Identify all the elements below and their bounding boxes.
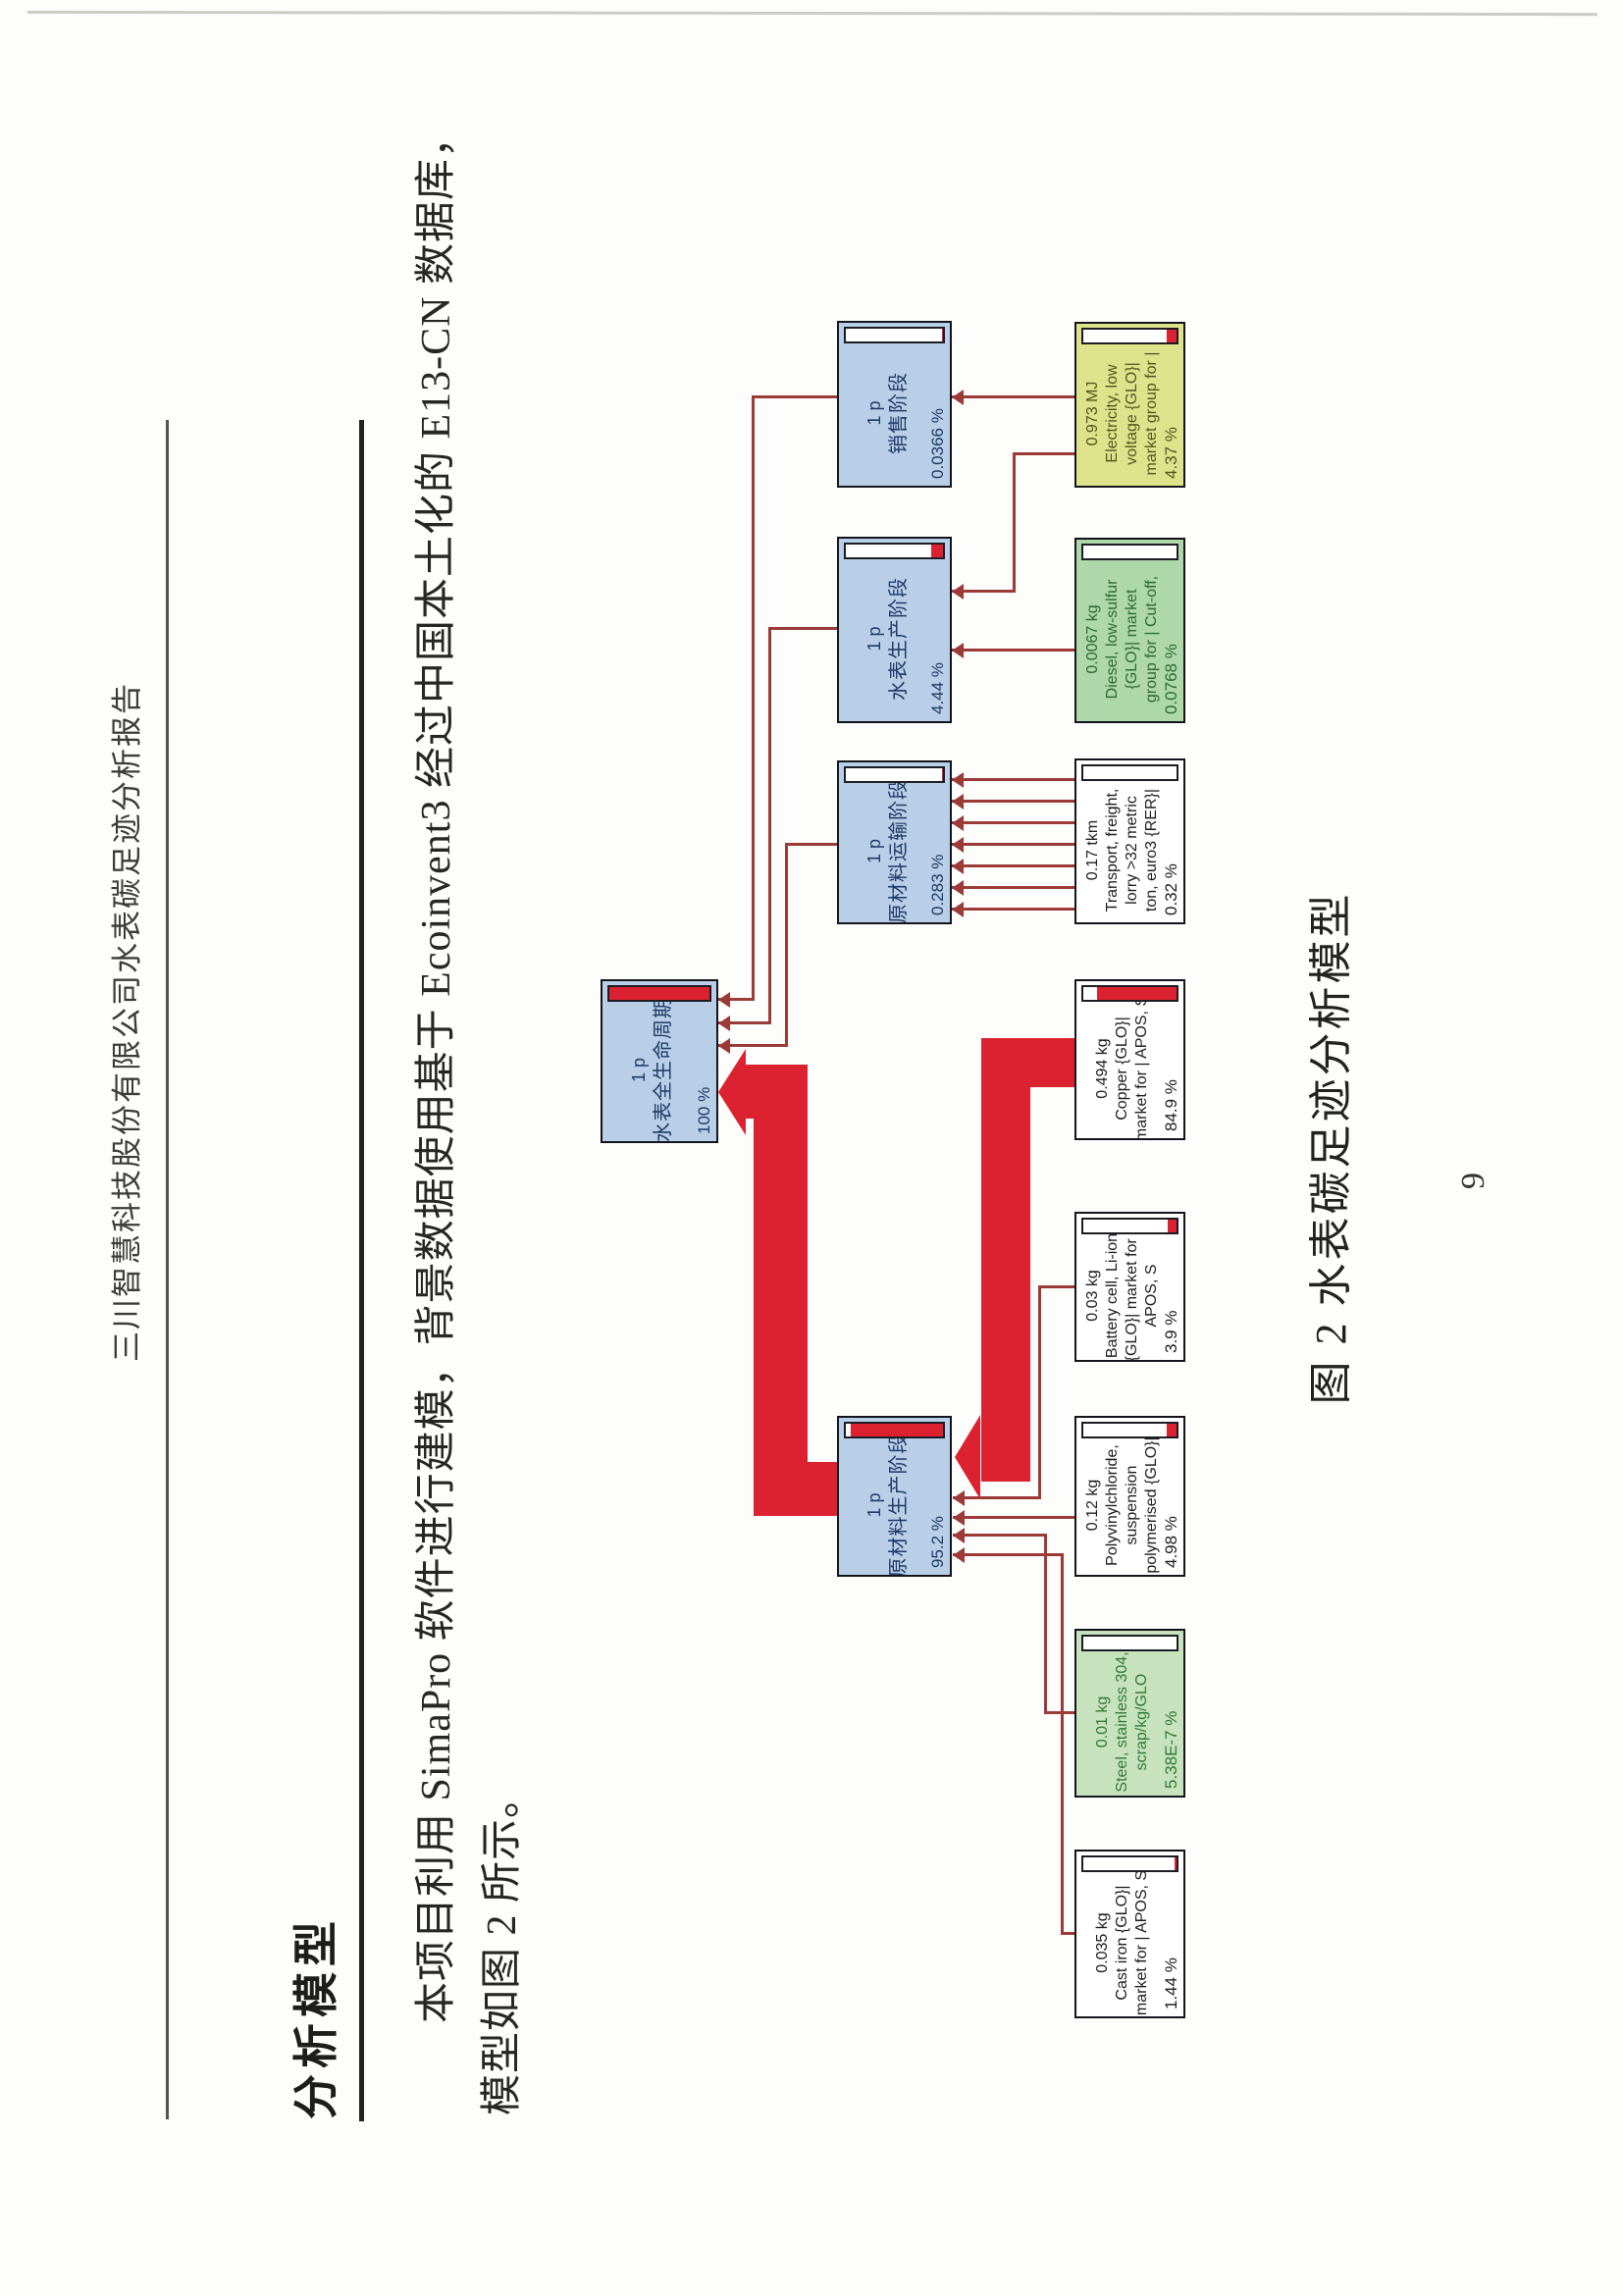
flow-arrowhead-icon: [718, 1016, 730, 1031]
flow-connector-line: [953, 1553, 1063, 1556]
node-percentage: 4.37 %: [1162, 427, 1181, 479]
node-percentage: 0.283 %: [928, 855, 948, 915]
flow-connector-line: [952, 649, 1074, 652]
node-name-line: Electricity, low: [1103, 364, 1123, 462]
contribution-indicator-bar: [1081, 544, 1178, 560]
node-amount: 1 p: [863, 400, 886, 425]
process-node-cast-iron: 0.035 kgCast iron {GLO}|market for | APO…: [1074, 1850, 1185, 2018]
node-amount: 0.17 tkm: [1083, 820, 1103, 880]
flow-connector-line: [952, 843, 1074, 846]
process-node-life-cycle: 1 p水表全生命周期100 %: [601, 979, 718, 1143]
flow-arrowhead-icon: [952, 794, 964, 809]
node-amount: 0.0067 kg: [1083, 604, 1103, 673]
node-percentage: 100 %: [695, 1087, 714, 1134]
contribution-indicator-fill: [1167, 330, 1177, 342]
flow-connector-line: [952, 886, 1074, 889]
node-percentage: 0.0366 %: [928, 408, 948, 479]
process-node-battery: 0.03 kgBattery cell, Li-ion{GLO}| market…: [1074, 1212, 1185, 1362]
flow-arrowhead-icon: [953, 1510, 965, 1526]
node-name-line: Diesel, low-sulfur: [1103, 580, 1123, 700]
flow-arrowhead-icon: [952, 880, 964, 896]
contribution-indicator-fill: [942, 768, 943, 781]
contribution-indicator-bar: [844, 543, 945, 559]
page-number: 9: [1455, 1173, 1492, 1189]
paragraph-line-1: 本项目利用 SimaPro 软件进行建模，背景数据使用基于 Ecoinvent3…: [402, 116, 462, 2023]
paragraph-line-2: 模型如图 2 所示。: [468, 1776, 528, 2115]
flow-connector-line: [1013, 452, 1016, 593]
flow-connector-line: [953, 1534, 1046, 1537]
node-percentage: 1.44 %: [1162, 1957, 1181, 2009]
contribution-indicator-fill: [1175, 1857, 1177, 1870]
node-name-line: lorry >32 metric: [1123, 796, 1142, 905]
flow-arrowhead-icon: [952, 643, 964, 658]
flow-connector-line: [768, 627, 837, 630]
node-percentage: 95.2 %: [928, 1516, 948, 1568]
flow-arrowhead-icon: [953, 1528, 965, 1543]
process-node-sales: 1 p销售阶段0.0366 %: [837, 321, 952, 488]
node-name-line: Cast iron {GLO}|: [1113, 1885, 1132, 2000]
page-header: 三川智慧科技股份有限公司水表碳足迹分析报告: [102, 682, 146, 1362]
flow-connector-line: [952, 395, 1074, 398]
flow-connector-line: [785, 843, 837, 846]
node-name-line: polymerised {GLO}|: [1142, 1436, 1162, 1573]
flow-band: [754, 1065, 808, 1516]
flow-connector-line: [1044, 1534, 1047, 1714]
flow-arrowhead-icon: [952, 859, 964, 874]
process-node-transport: 0.17 tkmTransport, freight,lorry >32 met…: [1074, 758, 1185, 924]
flow-connector-line: [1038, 1285, 1074, 1288]
node-amount: 0.03 kg: [1083, 1270, 1103, 1321]
contribution-indicator-bar: [1081, 764, 1178, 781]
contribution-indicator-fill: [942, 329, 943, 341]
flow-connector-line: [1013, 452, 1074, 455]
flow-arrowhead-icon: [952, 902, 964, 917]
node-name-line: suspension: [1123, 1466, 1142, 1545]
node-percentage: 3.9 %: [1162, 1311, 1181, 1353]
flow-connector-line: [752, 395, 755, 1001]
flow-connector-line: [952, 821, 1074, 824]
flow-arrowhead-icon: [952, 584, 964, 600]
node-name-line: {GLO}| market for |: [1123, 1230, 1142, 1362]
node-name-line: Polyvinylchloride,: [1103, 1444, 1123, 1566]
node-name-line: market group for |: [1142, 352, 1162, 476]
node-percentage: 84.9 %: [1162, 1079, 1181, 1131]
process-node-steel: 0.01 kgSteel, stainless 304,scrap/kg/GLO…: [1074, 1629, 1185, 1798]
node-amount: 1 p: [863, 839, 886, 863]
flow-connector-line: [952, 864, 1074, 867]
node-amount: 0.035 kg: [1093, 1912, 1113, 1972]
header-rule: [166, 420, 169, 2119]
node-name-line: Steel, stainless 304,: [1113, 1651, 1132, 1792]
node-name-line: voltage {GLO}|: [1123, 362, 1142, 465]
flow-arrowhead-icon: [718, 992, 730, 1008]
process-node-material-transport: 1 p原材料运输阶段0.283 %: [837, 760, 952, 924]
node-name-line: market for | APOS, S: [1132, 996, 1152, 1140]
process-node-pvc: 0.12 kgPolyvinylchloride,suspensionpolym…: [1074, 1416, 1185, 1577]
flow-connector-line: [768, 627, 771, 1024]
flow-band: [1022, 1038, 1076, 1087]
contribution-indicator-fill: [1097, 987, 1177, 1000]
section-title: 分析模型: [281, 1915, 345, 2119]
contribution-indicator-fill: [851, 1424, 943, 1436]
flow-band: [803, 1462, 839, 1516]
rotated-page-content: 三川智慧科技股份有限公司水表碳足迹分析报告 分析模型 本项目利用 SimaPro…: [0, 0, 1623, 2296]
node-name-line: Battery cell, Li-ion: [1103, 1233, 1123, 1358]
contribution-indicator-bar: [1081, 985, 1178, 1002]
node-amount: 0.973 MJ: [1083, 382, 1103, 446]
flow-band: [981, 1038, 1030, 1482]
node-amount: 1 p: [863, 1492, 886, 1517]
flow-connector-line: [952, 908, 1074, 911]
node-amount: 1 p: [863, 626, 886, 651]
contribution-indicator-fill: [931, 545, 943, 557]
flow-connector-line: [952, 800, 1074, 803]
node-amount: 1 p: [627, 1058, 651, 1082]
node-name-line: Copper {GLO}|: [1113, 1017, 1132, 1121]
node-name-line: APOS, S: [1142, 1264, 1162, 1327]
node-amount: 0.494 kg: [1093, 1038, 1113, 1098]
node-name-line: group for | Cut-off,: [1142, 576, 1162, 703]
node-amount: 0.01 kg: [1093, 1696, 1113, 1748]
scanned-report-page: 三川智慧科技股份有限公司水表碳足迹分析报告 分析模型 本项目利用 SimaPro…: [0, 0, 1623, 2296]
flow-band-arrowhead-icon: [955, 1415, 980, 1499]
node-name-line: market for | APOS, S: [1132, 1870, 1152, 2015]
contribution-indicator-bar: [844, 766, 945, 783]
flow-connector-line: [953, 1516, 1074, 1519]
flow-connector-line: [952, 778, 1074, 781]
process-node-diesel: 0.0067 kgDiesel, low-sulfur{GLO}| market…: [1074, 538, 1185, 723]
process-node-material-production: 1 p原材料生产阶段95.2 %: [837, 1416, 952, 1577]
contribution-indicator-bar: [1081, 328, 1178, 344]
flow-arrowhead-icon: [953, 1547, 965, 1563]
flow-connector-line: [1061, 1553, 1064, 1935]
contribution-indicator-bar: [844, 327, 945, 343]
node-percentage: 0.32 %: [1162, 863, 1181, 915]
flow-arrowhead-icon: [952, 772, 964, 788]
node-percentage: 4.44 %: [928, 662, 948, 714]
flow-arrowhead-icon: [952, 837, 964, 853]
contribution-indicator-bar: [1081, 1218, 1178, 1234]
flow-connector-line: [1044, 1711, 1074, 1714]
node-name-line: Transport, freight,: [1103, 789, 1123, 913]
figure-caption: 图 2 水表碳足迹分析模型: [1295, 746, 1358, 1550]
flow-connector-line: [1038, 1285, 1041, 1499]
node-name-line: 水表生产阶段: [886, 577, 912, 701]
process-node-copper: 0.494 kgCopper {GLO}|market for | APOS, …: [1074, 979, 1185, 1140]
process-node-electricity: 0.973 MJElectricity, lowvoltage {GLO}|ma…: [1074, 322, 1185, 488]
flow-connector-line: [752, 395, 837, 398]
contribution-indicator-bar: [607, 985, 711, 1002]
node-name-line: 原材料生产阶段: [886, 1434, 912, 1578]
flow-arrowhead-icon: [952, 390, 964, 405]
node-percentage: 0.0768 %: [1162, 644, 1181, 714]
contribution-indicator-bar: [844, 1422, 945, 1438]
node-amount: 0.12 kg: [1083, 1480, 1103, 1531]
section-title-rule: [359, 420, 364, 2121]
contribution-indicator-bar: [1081, 1422, 1178, 1438]
contribution-indicator-fill: [1168, 1220, 1177, 1232]
node-name-line: 原材料运输阶段: [886, 779, 912, 923]
node-name-line: scrap/kg/GLO: [1132, 1674, 1152, 1771]
contribution-indicator-bar: [1081, 1635, 1178, 1651]
node-percentage: 4.98 %: [1162, 1516, 1181, 1568]
contribution-indicator-bar: [1081, 1855, 1178, 1872]
process-node-meter-production: 1 p水表生产阶段4.44 %: [837, 537, 952, 723]
flow-band-arrowhead-icon: [718, 1049, 746, 1135]
node-name-line: {GLO}| market: [1123, 590, 1142, 690]
contribution-indicator-fill: [609, 987, 709, 1000]
flow-arrowhead-icon: [952, 815, 964, 831]
node-name-line: 水表全生命周期: [651, 998, 676, 1142]
contribution-indicator-fill: [1167, 1424, 1177, 1436]
node-name-line: 销售阶段: [886, 372, 912, 454]
flow-connector-line: [785, 843, 788, 1047]
node-percentage: 5.38E-7 %: [1162, 1711, 1181, 1789]
node-name-line: ton, euro3 {RER}|: [1142, 789, 1162, 912]
